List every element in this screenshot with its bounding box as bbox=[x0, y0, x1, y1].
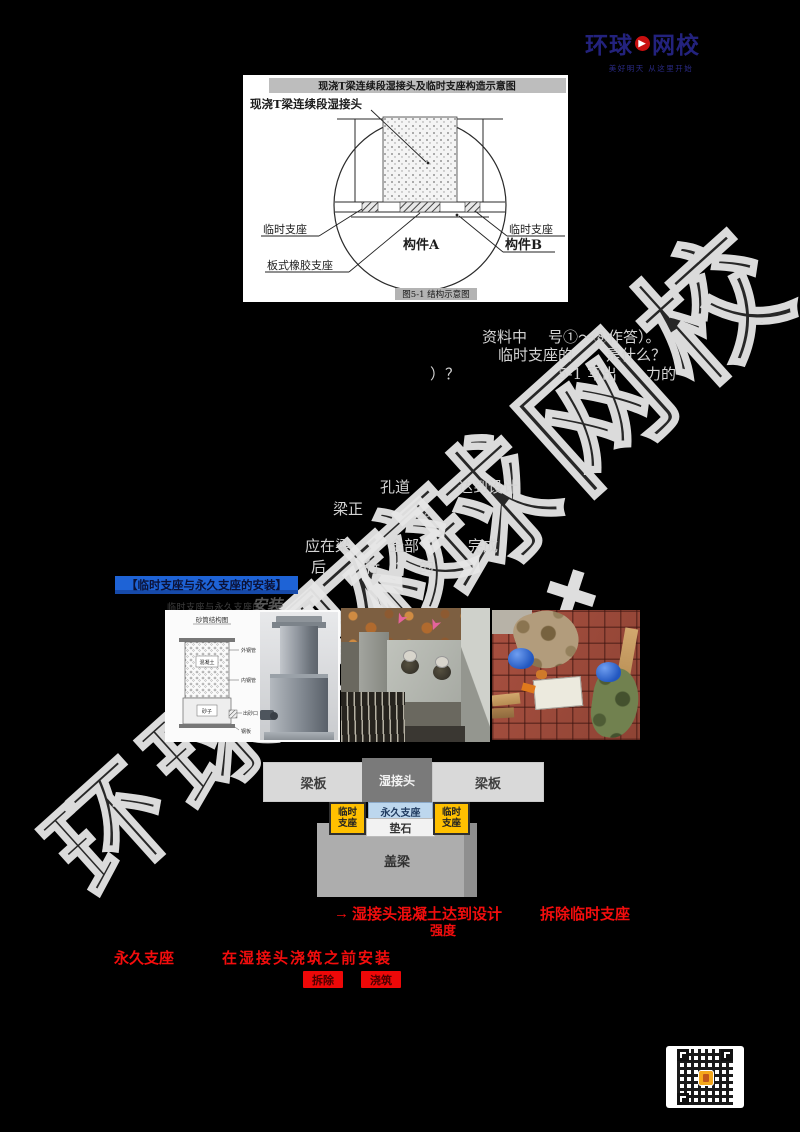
logo-text-left: 环球 bbox=[585, 26, 633, 60]
red-tag-remove: 拆除 bbox=[303, 971, 343, 988]
text-fragment: 是什么？ bbox=[606, 347, 666, 364]
leader-dot bbox=[456, 214, 459, 217]
text-fragment: 号①～⑧作答）。 bbox=[548, 329, 661, 346]
sand-outlet-hatch bbox=[229, 710, 237, 718]
hqwx-logo: 环球 ▶ 网校 美好明天 从这里开始 bbox=[585, 26, 725, 74]
figure-wet-joint-detail: 现浇T梁连续段湿接头及临时支座构造示意图 bbox=[243, 75, 568, 302]
sand-cylinder-photo bbox=[260, 612, 338, 740]
worker-glove bbox=[536, 670, 547, 679]
outlet-knob bbox=[270, 712, 278, 720]
text-fragment: 后 bbox=[311, 559, 326, 576]
play-icon: ▶ bbox=[635, 36, 650, 51]
label-outer-tube: 外钢管 bbox=[241, 647, 256, 654]
temp-support-left-box: 临时支座 bbox=[329, 802, 366, 835]
text-fragment: 湿接头混凝土达到设计 bbox=[352, 907, 502, 924]
qr-code-panel bbox=[666, 1046, 744, 1108]
support-schematic: 盖梁 梁板 湿接头 梁板 临时支座 永久支座 垫石 临时支座 bbox=[255, 755, 550, 900]
text-fragment: → bbox=[334, 906, 349, 923]
photo-workers-bearing-pad bbox=[492, 610, 640, 740]
section-banner: 【临时支座与永久支座的安装】 bbox=[115, 576, 298, 594]
anchor-cap bbox=[435, 656, 449, 668]
label-temp-support-right: 临时支座 bbox=[509, 222, 553, 236]
label-rubber-bearing: 板式橡胶支座 bbox=[267, 258, 333, 272]
label-inner-tube: 内钢管 bbox=[241, 677, 256, 684]
text-fragment: 孔道 bbox=[380, 479, 410, 496]
text-fragment: 梁正 bbox=[333, 501, 363, 518]
text-fragment: 拆除临时支座 bbox=[540, 907, 630, 924]
logo-tagline: 美好明天 从这里开始 bbox=[585, 63, 717, 74]
qr-finder-icon bbox=[677, 1049, 689, 1061]
sand-cylinder-diagram: 砂筒结构图 混凝土 砂子 外钢管 内钢管 出砂口 钢板 bbox=[165, 610, 260, 742]
red-tag-pour: 浇筑 bbox=[361, 971, 401, 988]
bearing-pad bbox=[533, 676, 583, 710]
beam-slab-right: 梁板 bbox=[432, 762, 544, 802]
wet-joint-box: 湿接头 bbox=[362, 758, 432, 802]
text-fragment: 应在梁 bbox=[305, 538, 350, 555]
text-fragment: 。 bbox=[424, 503, 439, 520]
sand-diagram-title: 砂筒结构图 bbox=[196, 615, 229, 624]
concrete-wall bbox=[461, 608, 490, 742]
logo-wordmark: 环球 ▶ 网校 bbox=[585, 26, 725, 60]
photo-bearing-installation: ➤ ➤ bbox=[341, 608, 490, 742]
text-fragment: 达到设计 bbox=[458, 479, 518, 496]
text-fragment: 完成 bbox=[468, 538, 498, 555]
text-fragment: ）？ bbox=[430, 366, 460, 383]
wood-plank bbox=[492, 693, 520, 707]
worker-helmet bbox=[508, 648, 534, 669]
text-fragment: 永久支座 bbox=[114, 951, 174, 968]
cylinder-body bbox=[185, 642, 229, 698]
anchor-cap bbox=[403, 650, 417, 662]
text-fragment: 资料中 bbox=[482, 329, 527, 346]
label-concrete: 混凝土 bbox=[199, 659, 214, 666]
temp-support-right-box: 临时支座 bbox=[433, 802, 470, 835]
document-page: 环球网校 环球网校 环球 ▶ 网校 美好明天 从这里开始 bbox=[0, 0, 800, 1132]
cylinder-base-plate bbox=[264, 732, 334, 740]
qr-logo-glyph bbox=[703, 1074, 709, 1082]
top-plate bbox=[179, 638, 235, 642]
text-fragment: 全部 bbox=[389, 538, 419, 555]
label-outlet: 出砂口 bbox=[243, 710, 258, 717]
qr-code bbox=[677, 1049, 733, 1105]
label-wet-joint: 现浇T梁连续段湿接头 bbox=[250, 97, 363, 111]
text-fragment: 临时支座的 bbox=[498, 347, 573, 364]
text-fragment: 行 bbox=[365, 559, 380, 576]
figure-title: 现浇T梁连续段湿接头及临时支座构造示意图 bbox=[318, 80, 515, 93]
support-hatches bbox=[362, 202, 480, 212]
photo-sand-cylinder: 砂筒结构图 混凝土 砂子 外钢管 内钢管 出砂口 钢板 bbox=[165, 610, 340, 742]
qr-center-logo bbox=[698, 1070, 714, 1086]
figure-caption: 图5-1 结构示意图 bbox=[402, 289, 469, 300]
text-fragment: 5-1 写出 bbox=[558, 366, 617, 383]
shadow-area bbox=[405, 726, 465, 742]
bottom-plate bbox=[179, 724, 235, 728]
label-plate: 钢板 bbox=[241, 728, 251, 735]
wet-joint-concrete bbox=[383, 117, 457, 202]
qr-finder-icon bbox=[721, 1049, 733, 1061]
rebar-cage bbox=[341, 692, 405, 742]
label-component-a: 构件A bbox=[403, 237, 440, 253]
logo-text-right: 网校 bbox=[652, 26, 700, 60]
figure-wet-joint-svg: 现浇T梁连续段湿接头及临时支座构造示意图 bbox=[243, 75, 568, 302]
label-component-b: 构件B bbox=[505, 237, 542, 253]
text-fragment: 的 bbox=[419, 559, 434, 576]
pad-stone-box: 垫石 bbox=[366, 818, 435, 837]
cylinder-outer-tube bbox=[270, 678, 328, 734]
beam-slab-left: 梁板 bbox=[263, 762, 364, 802]
leader-dot bbox=[427, 162, 430, 165]
label-sand: 砂子 bbox=[202, 708, 212, 715]
worker-helmet bbox=[596, 662, 621, 682]
text-fragment: 力的 bbox=[646, 366, 676, 383]
label-temp-support-left: 临时支座 bbox=[263, 222, 307, 236]
text-fragment: 在湿接头浇筑之前安装 bbox=[222, 951, 392, 968]
wood-plank bbox=[492, 707, 514, 718]
qr-finder-icon bbox=[677, 1093, 689, 1105]
text-fragment: 强度 bbox=[430, 924, 456, 938]
